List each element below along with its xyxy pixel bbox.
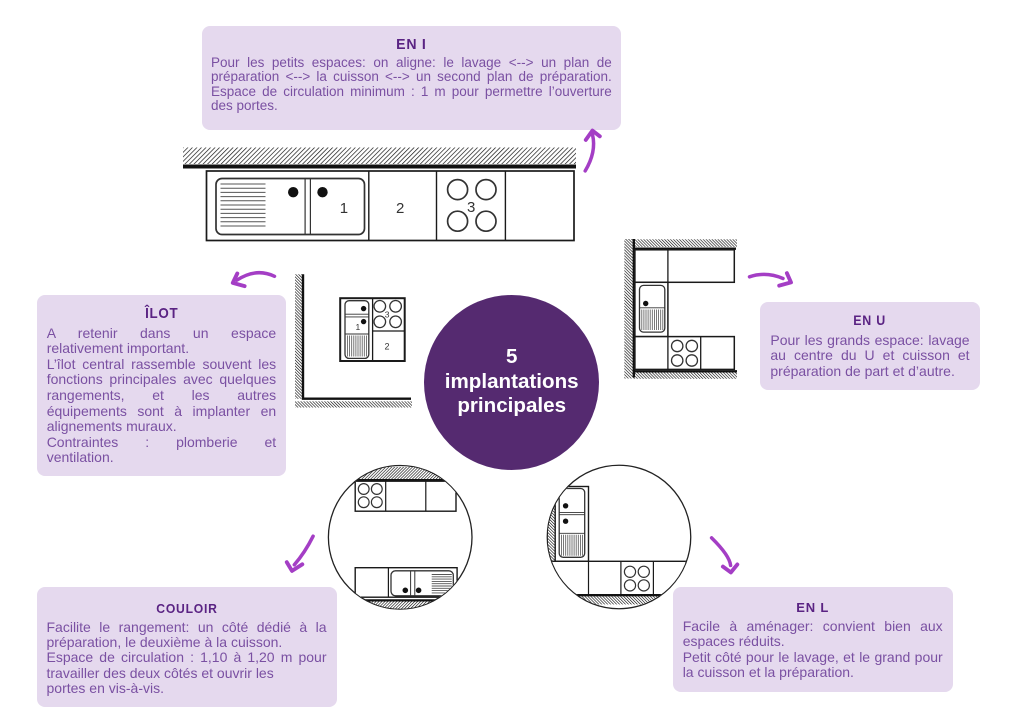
svg-text:2: 2: [385, 342, 390, 352]
svg-text:3: 3: [467, 199, 475, 216]
svg-text:1: 1: [356, 322, 361, 332]
svg-text:3: 3: [385, 310, 390, 320]
svg-text:1: 1: [340, 200, 348, 217]
svg-text:2: 2: [396, 200, 404, 217]
